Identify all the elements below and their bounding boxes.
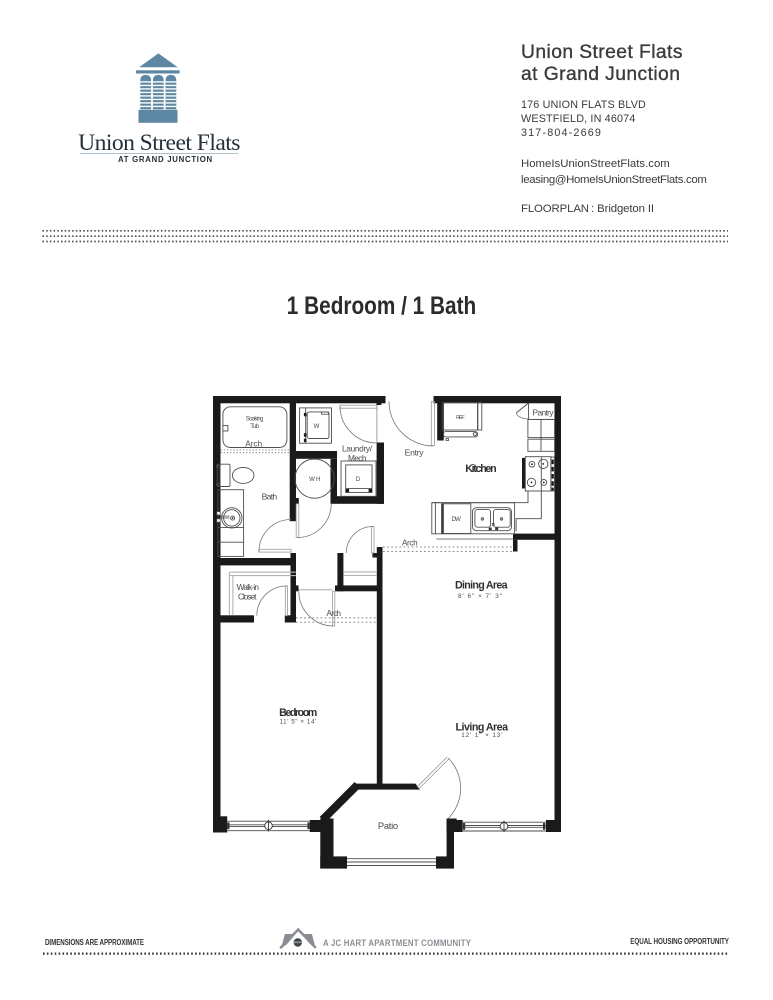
svg-text:Arch: Arch [402,539,418,548]
svg-text:WH: WH [309,476,320,483]
svg-text:Bedroom: Bedroom [279,707,317,719]
svg-text:Pantry: Pantry [533,407,555,417]
svg-text:Arch: Arch [245,439,262,448]
svg-text:REF: REF [456,415,465,421]
svg-text:Arch: Arch [327,609,342,618]
svg-text:8' 6" × 7' 3": 8' 6" × 7' 3" [458,593,502,600]
svg-text:Bath: Bath [262,492,278,502]
svg-text:Kitchen: Kitchen [465,463,496,475]
svg-text:Tub: Tub [250,423,259,430]
svg-text:Closet: Closet [238,591,257,601]
svg-text:Entry: Entry [405,447,425,457]
svg-text:Mech: Mech [348,453,367,463]
svg-text:DW: DW [451,516,461,523]
svg-text:W: W [314,423,320,430]
svg-text:12' 1" × 13': 12' 1" × 13' [461,732,502,739]
svg-text:Patio: Patio [378,820,398,831]
svg-text:11' 5" × 14': 11' 5" × 14' [280,718,317,725]
svg-text:Dining Area: Dining Area [455,580,509,592]
svg-text:Soaking: Soaking [246,415,264,422]
svg-text:D: D [356,476,361,483]
